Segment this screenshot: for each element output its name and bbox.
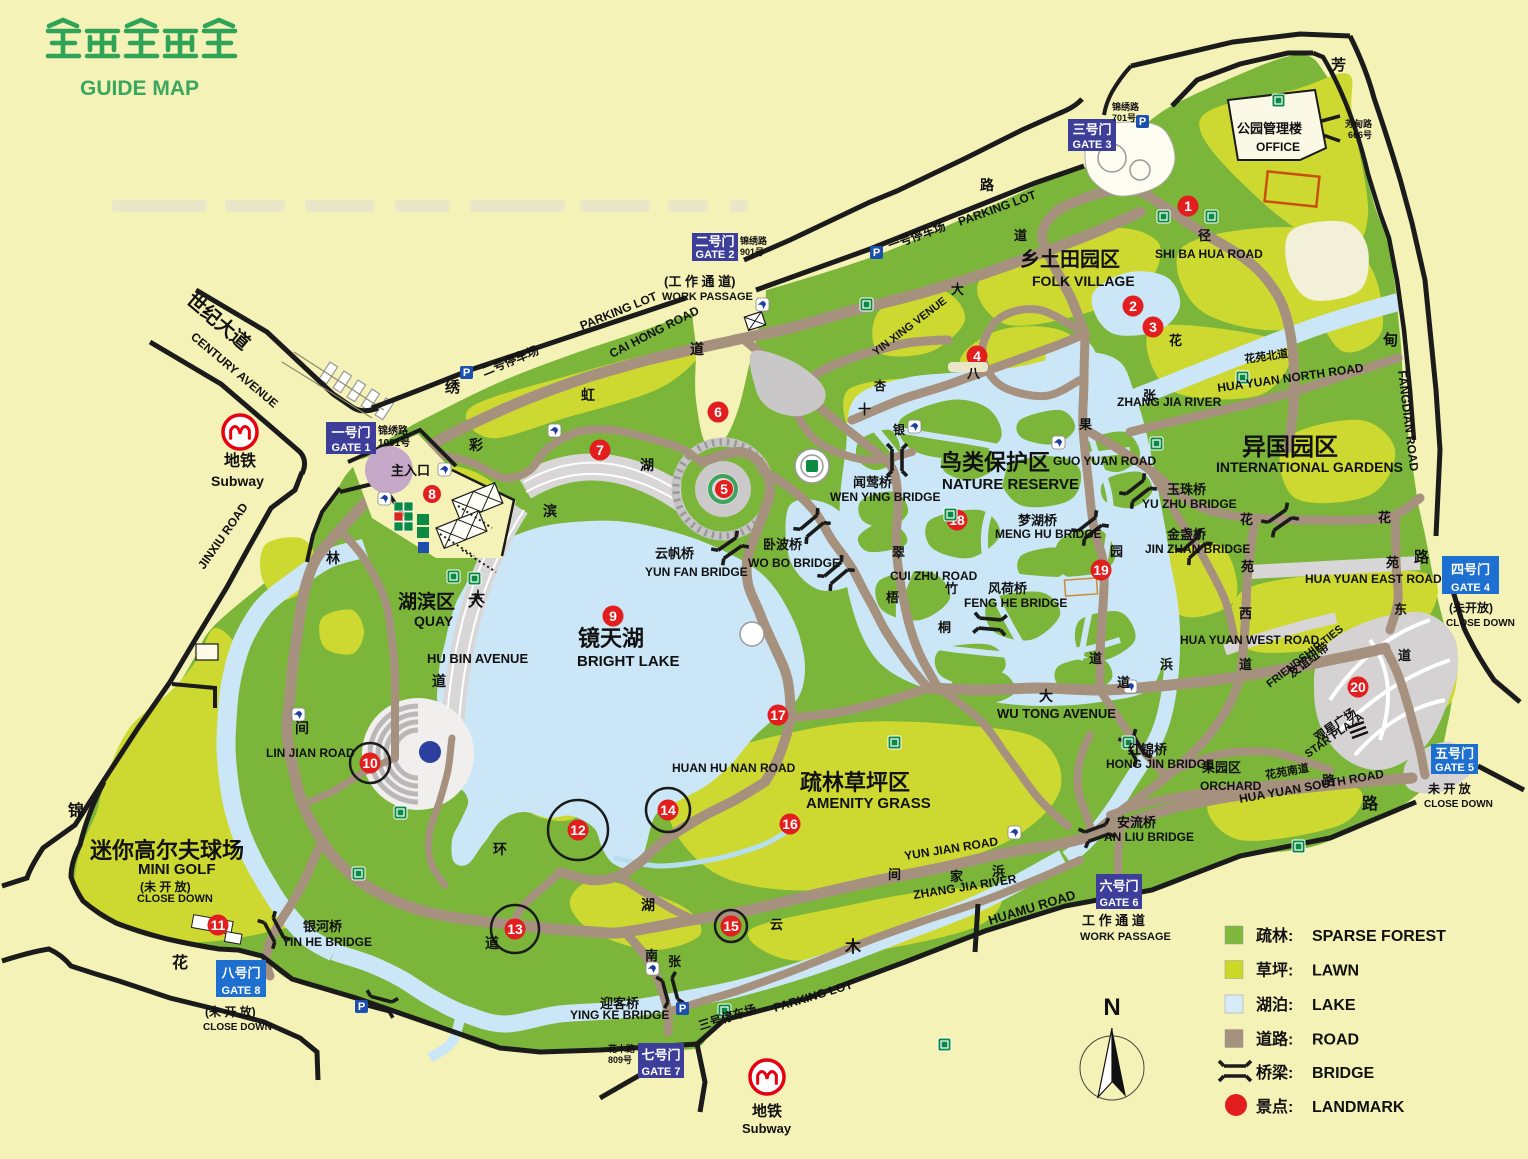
svg-text:901号: 901号 (740, 247, 764, 257)
svg-text:GATE 8: GATE 8 (222, 985, 261, 997)
svg-text:GATE 5: GATE 5 (1435, 762, 1474, 774)
svg-text:虹: 虹 (581, 387, 595, 403)
svg-text:GATE 3: GATE 3 (1073, 139, 1112, 151)
svg-text:八号门: 八号门 (220, 966, 260, 981)
svg-text:道: 道 (1117, 675, 1130, 690)
svg-text:CLOSE DOWN: CLOSE DOWN (1446, 618, 1515, 629)
svg-text:锦: 锦 (68, 801, 84, 820)
svg-text:N: N (1103, 994, 1120, 1021)
svg-text:P: P (679, 1003, 686, 1015)
svg-text:WEN YING BRIDGE: WEN YING BRIDGE (830, 490, 940, 504)
svg-text:滨: 滨 (543, 503, 557, 519)
svg-text:绣: 绣 (444, 378, 461, 396)
svg-text:南: 南 (645, 948, 658, 963)
svg-text:路: 路 (980, 177, 995, 193)
svg-text:SHI BA HUA ROAD: SHI BA HUA ROAD (1155, 247, 1263, 261)
svg-text:张: 张 (668, 954, 682, 969)
svg-text:大: 大 (471, 589, 485, 605)
svg-text:花: 花 (1240, 512, 1253, 527)
svg-text:FOLK VILLAGE: FOLK VILLAGE (1032, 273, 1135, 289)
svg-text:银河桥: 银河桥 (303, 919, 343, 934)
svg-text:家: 家 (950, 869, 964, 884)
svg-text:道: 道 (432, 673, 446, 689)
svg-text:WU TONG AVENUE: WU TONG AVENUE (997, 706, 1116, 721)
svg-text:四号门: 四号门 (1451, 562, 1490, 577)
svg-text:芳甸路: 芳甸路 (1345, 118, 1373, 129)
svg-text:路: 路 (1362, 794, 1379, 813)
svg-text:金盏桥: 金盏桥 (1166, 527, 1207, 542)
svg-text:2: 2 (1129, 298, 1137, 314)
svg-text:疏林:: 疏林: (1256, 926, 1293, 945)
svg-text:花: 花 (172, 953, 188, 972)
svg-text:P: P (358, 1001, 365, 1013)
svg-text:安流桥: 安流桥 (1117, 815, 1157, 830)
svg-text:大: 大 (951, 282, 964, 297)
svg-text:ZHANG JIA RIVER: ZHANG JIA RIVER (1117, 395, 1222, 409)
svg-text:五号门: 五号门 (1435, 746, 1474, 761)
svg-text:GATE 2: GATE 2 (696, 249, 735, 261)
svg-text:道: 道 (1089, 651, 1102, 666)
svg-text:P: P (873, 247, 880, 259)
svg-text:道: 道 (485, 935, 499, 951)
svg-text:16: 16 (782, 816, 798, 832)
svg-text:P: P (463, 367, 470, 379)
svg-text:甸: 甸 (1382, 331, 1398, 349)
svg-text:卧波桥: 卧波桥 (763, 537, 803, 552)
svg-text:彩: 彩 (468, 437, 483, 453)
svg-text:镜天湖: 镜天湖 (578, 626, 644, 651)
svg-text:LANDMARK: LANDMARK (1312, 1099, 1405, 1116)
svg-text:玉珠桥: 玉珠桥 (1167, 482, 1207, 497)
svg-text:(未开放): (未开放) (1449, 600, 1493, 615)
svg-text:杏: 杏 (873, 378, 886, 393)
svg-text:HONG JIN BRIDGE: HONG JIN BRIDGE (1106, 757, 1214, 771)
svg-text:7: 7 (596, 442, 604, 458)
svg-text:MINI GOLF: MINI GOLF (138, 861, 216, 878)
svg-text:风荷桥: 风荷桥 (988, 581, 1028, 596)
svg-text:林: 林 (326, 550, 340, 566)
svg-text:17: 17 (770, 707, 786, 723)
svg-text:果: 果 (1078, 417, 1092, 432)
svg-text:701号: 701号 (1112, 113, 1136, 123)
svg-text:3: 3 (1149, 319, 1157, 335)
svg-text:GATE 6: GATE 6 (1100, 897, 1139, 909)
svg-text:银: 银 (893, 422, 906, 437)
svg-text:翠: 翠 (892, 545, 905, 560)
svg-text:云: 云 (770, 917, 783, 932)
svg-text:HUAN HU NAN ROAD: HUAN HU NAN ROAD (672, 761, 796, 775)
svg-text:东: 东 (1394, 602, 1407, 617)
svg-text:ROAD: ROAD (1312, 1032, 1359, 1049)
svg-text:三号门: 三号门 (1072, 122, 1111, 137)
svg-text:5: 5 (720, 481, 728, 497)
svg-text:锦绣路: 锦绣路 (740, 235, 768, 246)
svg-text:梧: 梧 (886, 590, 899, 605)
svg-text:LAKE: LAKE (1312, 997, 1356, 1014)
svg-text:大: 大 (1039, 688, 1053, 704)
svg-text:HU BIN AVENUE: HU BIN AVENUE (427, 651, 528, 666)
svg-text:鸟类保护区: 鸟类保护区 (940, 450, 1050, 475)
svg-text:湖泊:: 湖泊: (1256, 995, 1293, 1014)
svg-text:景点:: 景点: (1256, 1097, 1293, 1116)
svg-text:桥梁:: 桥梁: (1256, 1063, 1293, 1082)
svg-text:JIN ZHAN BRIDGE: JIN ZHAN BRIDGE (1145, 542, 1250, 556)
svg-text:闻莺桥: 闻莺桥 (853, 475, 893, 490)
svg-text:11: 11 (211, 917, 226, 933)
svg-text:云帆桥: 云帆桥 (655, 546, 695, 561)
svg-text:道: 道 (690, 341, 704, 357)
svg-text:主入口: 主入口 (391, 463, 430, 478)
svg-text:809号: 809号 (608, 1055, 632, 1065)
svg-text:GATE 7: GATE 7 (642, 1066, 681, 1078)
svg-text:LIN JIAN ROAD: LIN JIAN ROAD (266, 746, 355, 760)
svg-text:园: 园 (1110, 544, 1123, 559)
svg-text:地铁: 地铁 (752, 1102, 782, 1120)
svg-text:(工 作 通 道): (工 作 通 道) (664, 274, 736, 289)
svg-text:浜: 浜 (992, 864, 1005, 879)
svg-text:道: 道 (1014, 228, 1027, 243)
svg-text:花木路: 花木路 (608, 1043, 636, 1054)
svg-text:锦绣路: 锦绣路 (1112, 101, 1140, 112)
svg-text:9: 9 (609, 608, 617, 624)
svg-text:苑: 苑 (1240, 559, 1254, 574)
svg-text:(未 开 放): (未 开 放) (140, 879, 191, 894)
svg-text:道: 道 (1398, 648, 1411, 663)
svg-text:工 作 通 道: 工 作 通 道 (1082, 913, 1145, 928)
svg-text:MENG HU BRIDGE: MENG HU BRIDGE (995, 527, 1102, 541)
svg-text:六号门: 六号门 (1099, 879, 1138, 894)
svg-text:LAWN: LAWN (1312, 963, 1359, 980)
svg-text:12: 12 (570, 822, 586, 838)
svg-text:AMENITY GRASS: AMENITY GRASS (806, 795, 931, 812)
svg-text:14: 14 (660, 802, 676, 818)
svg-text:YU ZHU BRIDGE: YU ZHU BRIDGE (1142, 497, 1237, 511)
svg-text:19: 19 (1093, 562, 1109, 578)
svg-text:4: 4 (973, 348, 981, 364)
svg-text:二号门: 二号门 (695, 234, 734, 249)
svg-text:芳: 芳 (1331, 56, 1346, 74)
svg-text:HUA YUAN WEST ROAD: HUA YUAN WEST ROAD (1180, 633, 1320, 647)
svg-text:WO BO BRIDGE: WO BO BRIDGE (748, 556, 840, 570)
svg-text:GATE 4: GATE 4 (1451, 582, 1491, 594)
svg-text:锦绣路: 锦绣路 (378, 424, 409, 437)
svg-text:异国园区: 异国园区 (1242, 434, 1338, 461)
svg-text:P: P (1139, 116, 1146, 128)
svg-text:浜: 浜 (1160, 657, 1173, 672)
svg-text:NATURE RESERVE: NATURE RESERVE (942, 476, 1079, 493)
svg-text:OFFICE: OFFICE (1256, 140, 1300, 154)
svg-text:15: 15 (723, 918, 739, 934)
svg-text:迷你高尔夫球场: 迷你高尔夫球场 (89, 838, 244, 863)
svg-text:20: 20 (1350, 679, 1366, 695)
svg-text:Subway: Subway (742, 1121, 792, 1136)
svg-text:FENG HE BRIDGE: FENG HE BRIDGE (964, 596, 1067, 610)
svg-text:十: 十 (858, 402, 871, 417)
svg-text:桐: 桐 (938, 620, 951, 635)
svg-text:1: 1 (1184, 198, 1192, 214)
svg-text:梦湖桥: 梦湖桥 (1018, 513, 1058, 528)
svg-text:环: 环 (493, 841, 507, 857)
svg-text:6: 6 (714, 404, 722, 420)
svg-text:1001号: 1001号 (378, 437, 410, 449)
svg-text:GUIDE MAP: GUIDE MAP (80, 77, 199, 100)
svg-text:道路:: 道路: (1256, 1030, 1293, 1049)
svg-text:CLOSE DOWN: CLOSE DOWN (1424, 799, 1493, 810)
svg-text:GUO YUAN ROAD: GUO YUAN ROAD (1053, 454, 1156, 468)
svg-text:湖: 湖 (641, 897, 655, 913)
svg-text:径: 径 (1198, 228, 1211, 243)
svg-text:八: 八 (966, 366, 981, 381)
svg-text:INTERNATIONAL GARDENS: INTERNATIONAL GARDENS (1216, 459, 1403, 475)
svg-text:AN LIU BRIDGE: AN LIU BRIDGE (1104, 830, 1194, 844)
svg-text:一号门: 一号门 (331, 425, 370, 440)
svg-text:路: 路 (1414, 548, 1430, 566)
svg-text:QUAY: QUAY (414, 613, 454, 629)
svg-text:YIN HE BRIDGE: YIN HE BRIDGE (282, 935, 372, 949)
svg-text:草坪:: 草坪: (1256, 962, 1293, 980)
svg-text:CLOSE DOWN: CLOSE DOWN (137, 893, 213, 905)
svg-text:CLOSE DOWN: CLOSE DOWN (203, 1022, 272, 1033)
svg-text:路: 路 (1322, 773, 1336, 788)
svg-text:地铁: 地铁 (224, 451, 256, 470)
svg-text:湖: 湖 (640, 457, 654, 473)
svg-text:张: 张 (1143, 388, 1157, 403)
svg-text:花: 花 (1169, 333, 1182, 348)
svg-text:苑: 苑 (1385, 555, 1399, 570)
svg-text:YING KE BRIDGE: YING KE BRIDGE (570, 1008, 669, 1022)
svg-text:西: 西 (1239, 606, 1252, 621)
svg-text:YUN FAN BRIDGE: YUN FAN BRIDGE (645, 565, 748, 579)
svg-text:10: 10 (362, 755, 378, 771)
svg-text:8: 8 (428, 486, 436, 502)
svg-text:BRIGHT LAKE: BRIGHT LAKE (577, 653, 680, 670)
svg-text:湖滨区: 湖滨区 (398, 590, 455, 613)
svg-text:Subway: Subway (211, 473, 264, 489)
svg-text:未 开 放: 未 开 放 (1427, 781, 1472, 796)
svg-text:七号门: 七号门 (641, 1048, 680, 1063)
svg-text:花: 花 (1378, 510, 1391, 525)
svg-text:SPARSE FOREST: SPARSE FOREST (1312, 928, 1446, 945)
svg-text:GATE 1: GATE 1 (332, 442, 371, 454)
svg-text:乡土田园区: 乡土田园区 (1020, 248, 1120, 271)
svg-text:WORK PASSAGE: WORK PASSAGE (662, 291, 753, 303)
svg-text:道: 道 (1239, 657, 1252, 672)
svg-text:公园管理楼: 公园管理楼 (1237, 121, 1302, 136)
svg-text:(未 开 放): (未 开 放) (205, 1004, 256, 1019)
svg-text:竹: 竹 (944, 581, 958, 596)
svg-text:WORK PASSAGE: WORK PASSAGE (1080, 931, 1171, 943)
svg-text:木: 木 (844, 937, 862, 956)
svg-text:HUA YUAN EAST ROAD: HUA YUAN EAST ROAD (1305, 572, 1442, 586)
svg-text:BRIDGE: BRIDGE (1312, 1065, 1375, 1082)
svg-text:13: 13 (507, 921, 523, 937)
svg-text:疏林草坪区: 疏林草坪区 (800, 770, 910, 795)
svg-text:666号: 666号 (1348, 130, 1372, 140)
svg-text:ORCHARD: ORCHARD (1200, 779, 1262, 793)
svg-text:红锦桥: 红锦桥 (1128, 742, 1168, 757)
svg-text:间: 间 (888, 867, 901, 882)
svg-text:间: 间 (295, 720, 309, 736)
svg-text:CUI ZHU ROAD: CUI ZHU ROAD (890, 569, 978, 583)
